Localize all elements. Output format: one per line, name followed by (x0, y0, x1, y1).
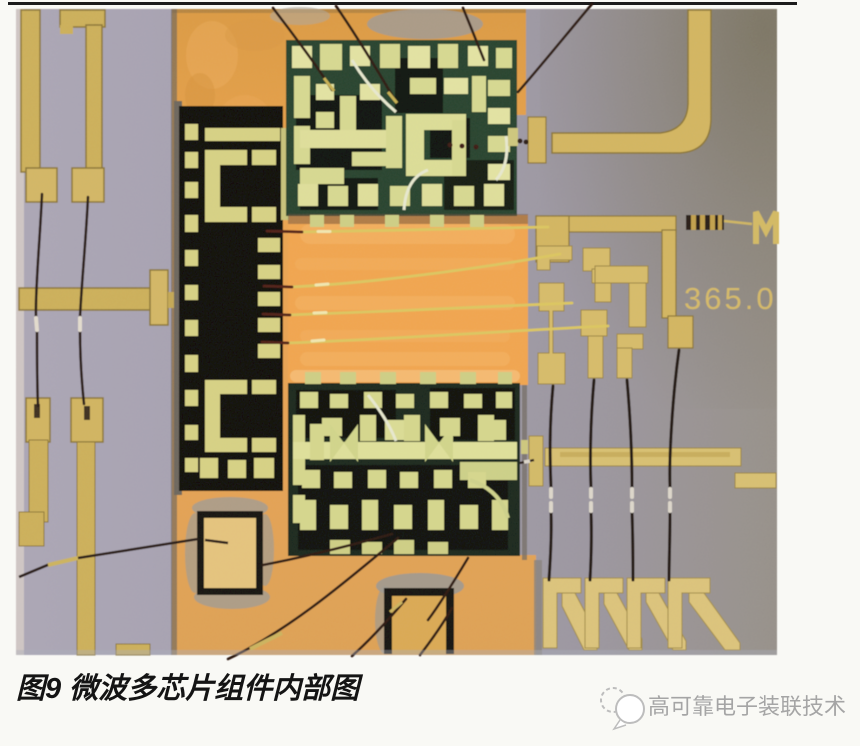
svg-text:高可靠电子装联技术: 高可靠电子装联技术 (648, 694, 846, 719)
svg-text:图9 微波多芯片组件内部图: 图9 微波多芯片组件内部图 (16, 672, 363, 705)
